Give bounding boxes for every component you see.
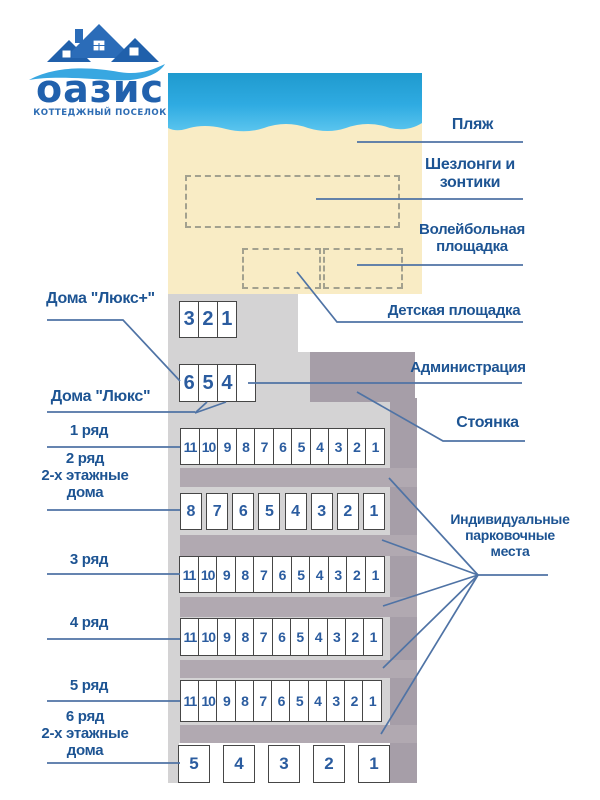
house-number-cell: 11 bbox=[180, 428, 200, 465]
row-3: 1110987654321 bbox=[179, 556, 385, 593]
road-band bbox=[180, 597, 417, 617]
loungers-area bbox=[185, 175, 400, 228]
house-number-cell: 3 bbox=[268, 745, 300, 783]
house-number-cell: 4 bbox=[308, 680, 328, 722]
lux-row: 654 bbox=[179, 364, 256, 402]
house-number-cell: 4 bbox=[285, 493, 307, 530]
row-4: 1110987654321 bbox=[180, 618, 383, 656]
road-band bbox=[180, 535, 417, 556]
house-number-cell: 9 bbox=[216, 556, 236, 593]
house-number-cell: 6 bbox=[271, 680, 291, 722]
logo-brand-text: оазис bbox=[36, 67, 164, 111]
house-number-cell: 10 bbox=[199, 428, 219, 465]
house-number-cell: 6 bbox=[273, 428, 293, 465]
logo-tagline-text: КОТТЕДЖНЫЙ ПОСЕЛОК bbox=[33, 106, 167, 118]
house-number-cell: 7 bbox=[253, 618, 273, 656]
house-number-cell: 1 bbox=[217, 301, 237, 338]
row-2: 87654321 bbox=[180, 493, 385, 530]
house-number-cell: 1 bbox=[365, 556, 385, 593]
lux-plus-label: Дома "Люкс+" bbox=[33, 290, 168, 308]
oasis-logo: оазис КОТТЕДЖНЫЙ ПОСЕЛОК bbox=[25, 14, 175, 124]
house-number-cell: 7 bbox=[253, 556, 273, 593]
admin-parking-block bbox=[310, 352, 415, 402]
playground-area bbox=[242, 248, 321, 289]
house-number-cell: 1 bbox=[362, 680, 382, 722]
house-number-cell: 9 bbox=[216, 680, 236, 722]
lux-plus-row: 321 bbox=[179, 301, 237, 338]
house-number-cell: 3 bbox=[328, 428, 348, 465]
administration-label: Администрация bbox=[403, 360, 533, 377]
house-number-cell: 6 bbox=[272, 556, 292, 593]
house-number-cell: 4 bbox=[223, 745, 255, 783]
house-number-cell: 5 bbox=[289, 680, 309, 722]
beach-label: Пляж bbox=[420, 116, 525, 134]
parking-label: Стоянка bbox=[435, 414, 540, 432]
house-number-cell: 9 bbox=[217, 618, 237, 656]
house-number-cell: 5 bbox=[291, 428, 311, 465]
house-number-cell: 8 bbox=[235, 556, 255, 593]
house-number-cell: 5 bbox=[290, 618, 310, 656]
house-number-cell: 11 bbox=[180, 618, 200, 656]
house-number-cell: 3 bbox=[327, 618, 347, 656]
row-6: 54321 bbox=[178, 745, 390, 783]
volleyball-label: Волейбольная площадка bbox=[408, 222, 536, 256]
house-number-cell: 8 bbox=[236, 428, 256, 465]
house-number-cell: 4 bbox=[310, 428, 330, 465]
loungers-label: Шезлонги и зонтики bbox=[412, 156, 528, 192]
lux-label: Дома "Люкс" bbox=[33, 388, 168, 406]
house-number-cell: 3 bbox=[179, 301, 199, 338]
house-number-cell: 9 bbox=[217, 428, 237, 465]
site-plan: 321 654 1110987654321 87654321 111098765… bbox=[0, 0, 600, 800]
row-5-label: 5 ряд bbox=[35, 678, 143, 695]
house-number-cell: 10 bbox=[198, 556, 218, 593]
road-band bbox=[180, 468, 417, 487]
house-number-cell: 7 bbox=[206, 493, 228, 530]
house-number-cell: 6 bbox=[232, 493, 254, 530]
volleyball-area bbox=[323, 248, 403, 289]
water-area bbox=[168, 73, 422, 137]
row-1-label: 1 ряд bbox=[35, 423, 143, 440]
house-number-cell: 8 bbox=[235, 680, 255, 722]
row-3-label: 3 ряд bbox=[35, 552, 143, 569]
house-number-cell: 2 bbox=[345, 618, 365, 656]
house-number-cell: 6 bbox=[272, 618, 292, 656]
house-number-cell: 5 bbox=[291, 556, 311, 593]
playground-label: Детская площадка bbox=[383, 303, 525, 320]
house-number-cell: 10 bbox=[198, 618, 218, 656]
leader-line-lux-plus bbox=[47, 320, 180, 381]
house-number-cell: 1 bbox=[363, 618, 383, 656]
house-number-cell: 2 bbox=[347, 428, 367, 465]
road-band bbox=[180, 725, 417, 743]
house-number-cell: 2 bbox=[313, 745, 345, 783]
row-5: 1110987654321 bbox=[180, 680, 382, 722]
individual-parking-label: Индивидуальные парковочные места bbox=[445, 512, 575, 559]
house-number-cell: 2 bbox=[337, 493, 359, 530]
house-number-cell: 5 bbox=[178, 745, 210, 783]
house-number-cell: 3 bbox=[328, 556, 348, 593]
road-band bbox=[180, 660, 417, 678]
house-number-cell: 4 bbox=[217, 364, 237, 402]
row-2-label: 2 ряд 2-х этажные дома bbox=[22, 451, 148, 502]
house-number-cell: 7 bbox=[254, 428, 274, 465]
house-number-cell: 4 bbox=[309, 556, 329, 593]
house-number-cell: 11 bbox=[180, 680, 200, 722]
house-number-cell: 8 bbox=[180, 493, 202, 530]
row-4-label: 4 ряд bbox=[35, 615, 143, 632]
house-number-cell: 1 bbox=[358, 745, 390, 783]
house-number-cell: 6 bbox=[179, 364, 199, 402]
house-number-cell: 1 bbox=[363, 493, 385, 530]
house-number-cell: 2 bbox=[346, 556, 366, 593]
house-number-cell: 3 bbox=[326, 680, 346, 722]
house-number-cell: 11 bbox=[179, 556, 199, 593]
house-number-cell: 2 bbox=[198, 301, 218, 338]
house-number-cell: 1 bbox=[365, 428, 385, 465]
house-number-cell: 4 bbox=[308, 618, 328, 656]
house-number-cell bbox=[236, 364, 256, 402]
house-number-cell: 7 bbox=[253, 680, 273, 722]
row-6-label: 6 ряд 2-х этажные дома bbox=[22, 709, 148, 760]
row-1: 1110987654321 bbox=[180, 428, 385, 465]
house-number-cell: 2 bbox=[344, 680, 364, 722]
house-number-cell: 8 bbox=[235, 618, 255, 656]
house-number-cell: 5 bbox=[258, 493, 280, 530]
house-number-cell: 3 bbox=[311, 493, 333, 530]
house-number-cell: 5 bbox=[198, 364, 218, 402]
house-number-cell: 10 bbox=[198, 680, 218, 722]
